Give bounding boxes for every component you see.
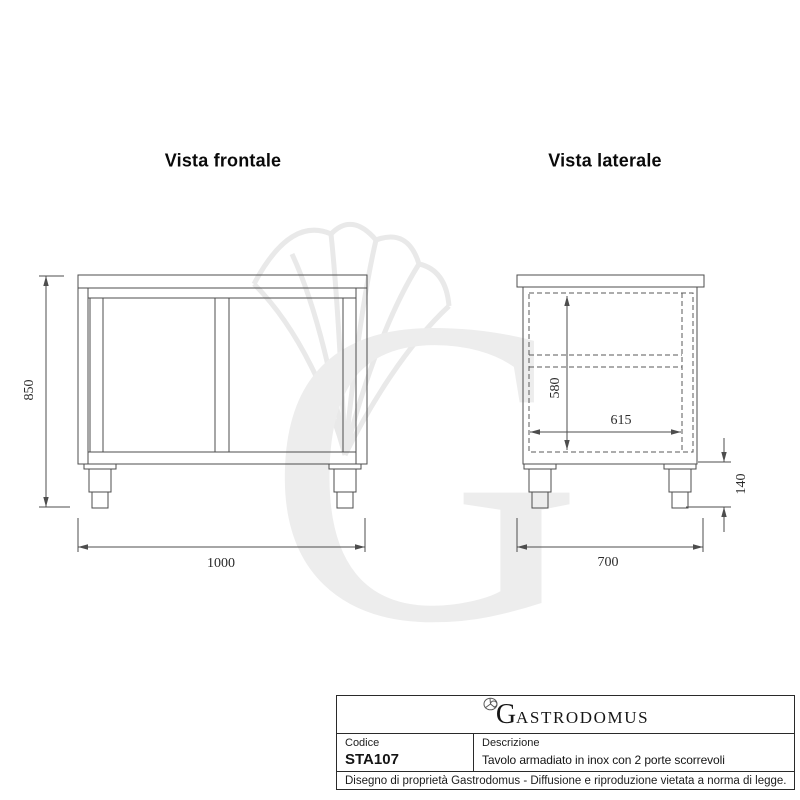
side-right-foot	[664, 464, 696, 508]
description-label: Descrizione	[482, 737, 786, 749]
side-left-foot	[524, 464, 556, 508]
code-cell: Codice STA107	[337, 734, 474, 771]
front-left-foot	[84, 464, 116, 508]
front-center-door-edge	[215, 298, 229, 452]
front-view-drawing	[78, 275, 367, 508]
side-leg-height-dim-label: 140	[734, 474, 750, 495]
title-block: GASTRODOMUS Codice STA107 Descrizione Ta…	[336, 695, 795, 790]
code-value: STA107	[345, 751, 465, 768]
side-inner-height-dim-label: 580	[548, 378, 564, 399]
side-countertop	[517, 275, 704, 287]
description-value: Tavolo armadiato in inox con 2 porte sco…	[482, 753, 786, 767]
side-view-drawing	[517, 275, 704, 508]
side-body	[523, 287, 697, 464]
front-countertop	[78, 275, 367, 288]
side-view-title: Vista laterale	[548, 151, 662, 172]
side-depth-dim-label: 700	[598, 555, 619, 571]
front-right-door-edge	[343, 298, 356, 452]
front-width-dim-label: 1000	[207, 556, 235, 572]
brand-logo-row: GASTRODOMUS	[337, 696, 794, 734]
side-inner-depth-dim-label: 615	[611, 413, 632, 429]
front-left-door-edge	[90, 298, 103, 452]
brand-name: ASTRODOMUS	[516, 708, 649, 728]
brand-initial: G	[496, 702, 516, 728]
brand-logo: GASTRODOMUS	[482, 702, 649, 728]
legal-notice: Disegno di proprietà Gastrodomus - Diffu…	[337, 772, 794, 789]
title-block-info-row: Codice STA107 Descrizione Tavolo armadia…	[337, 734, 794, 772]
front-right-foot	[329, 464, 361, 508]
code-label: Codice	[345, 737, 465, 749]
front-height-dim-label: 850	[22, 380, 38, 401]
technical-drawing	[0, 0, 800, 800]
description-cell: Descrizione Tavolo armadiato in inox con…	[474, 734, 794, 771]
front-body	[78, 288, 367, 464]
front-view-title: Vista frontale	[165, 151, 282, 172]
